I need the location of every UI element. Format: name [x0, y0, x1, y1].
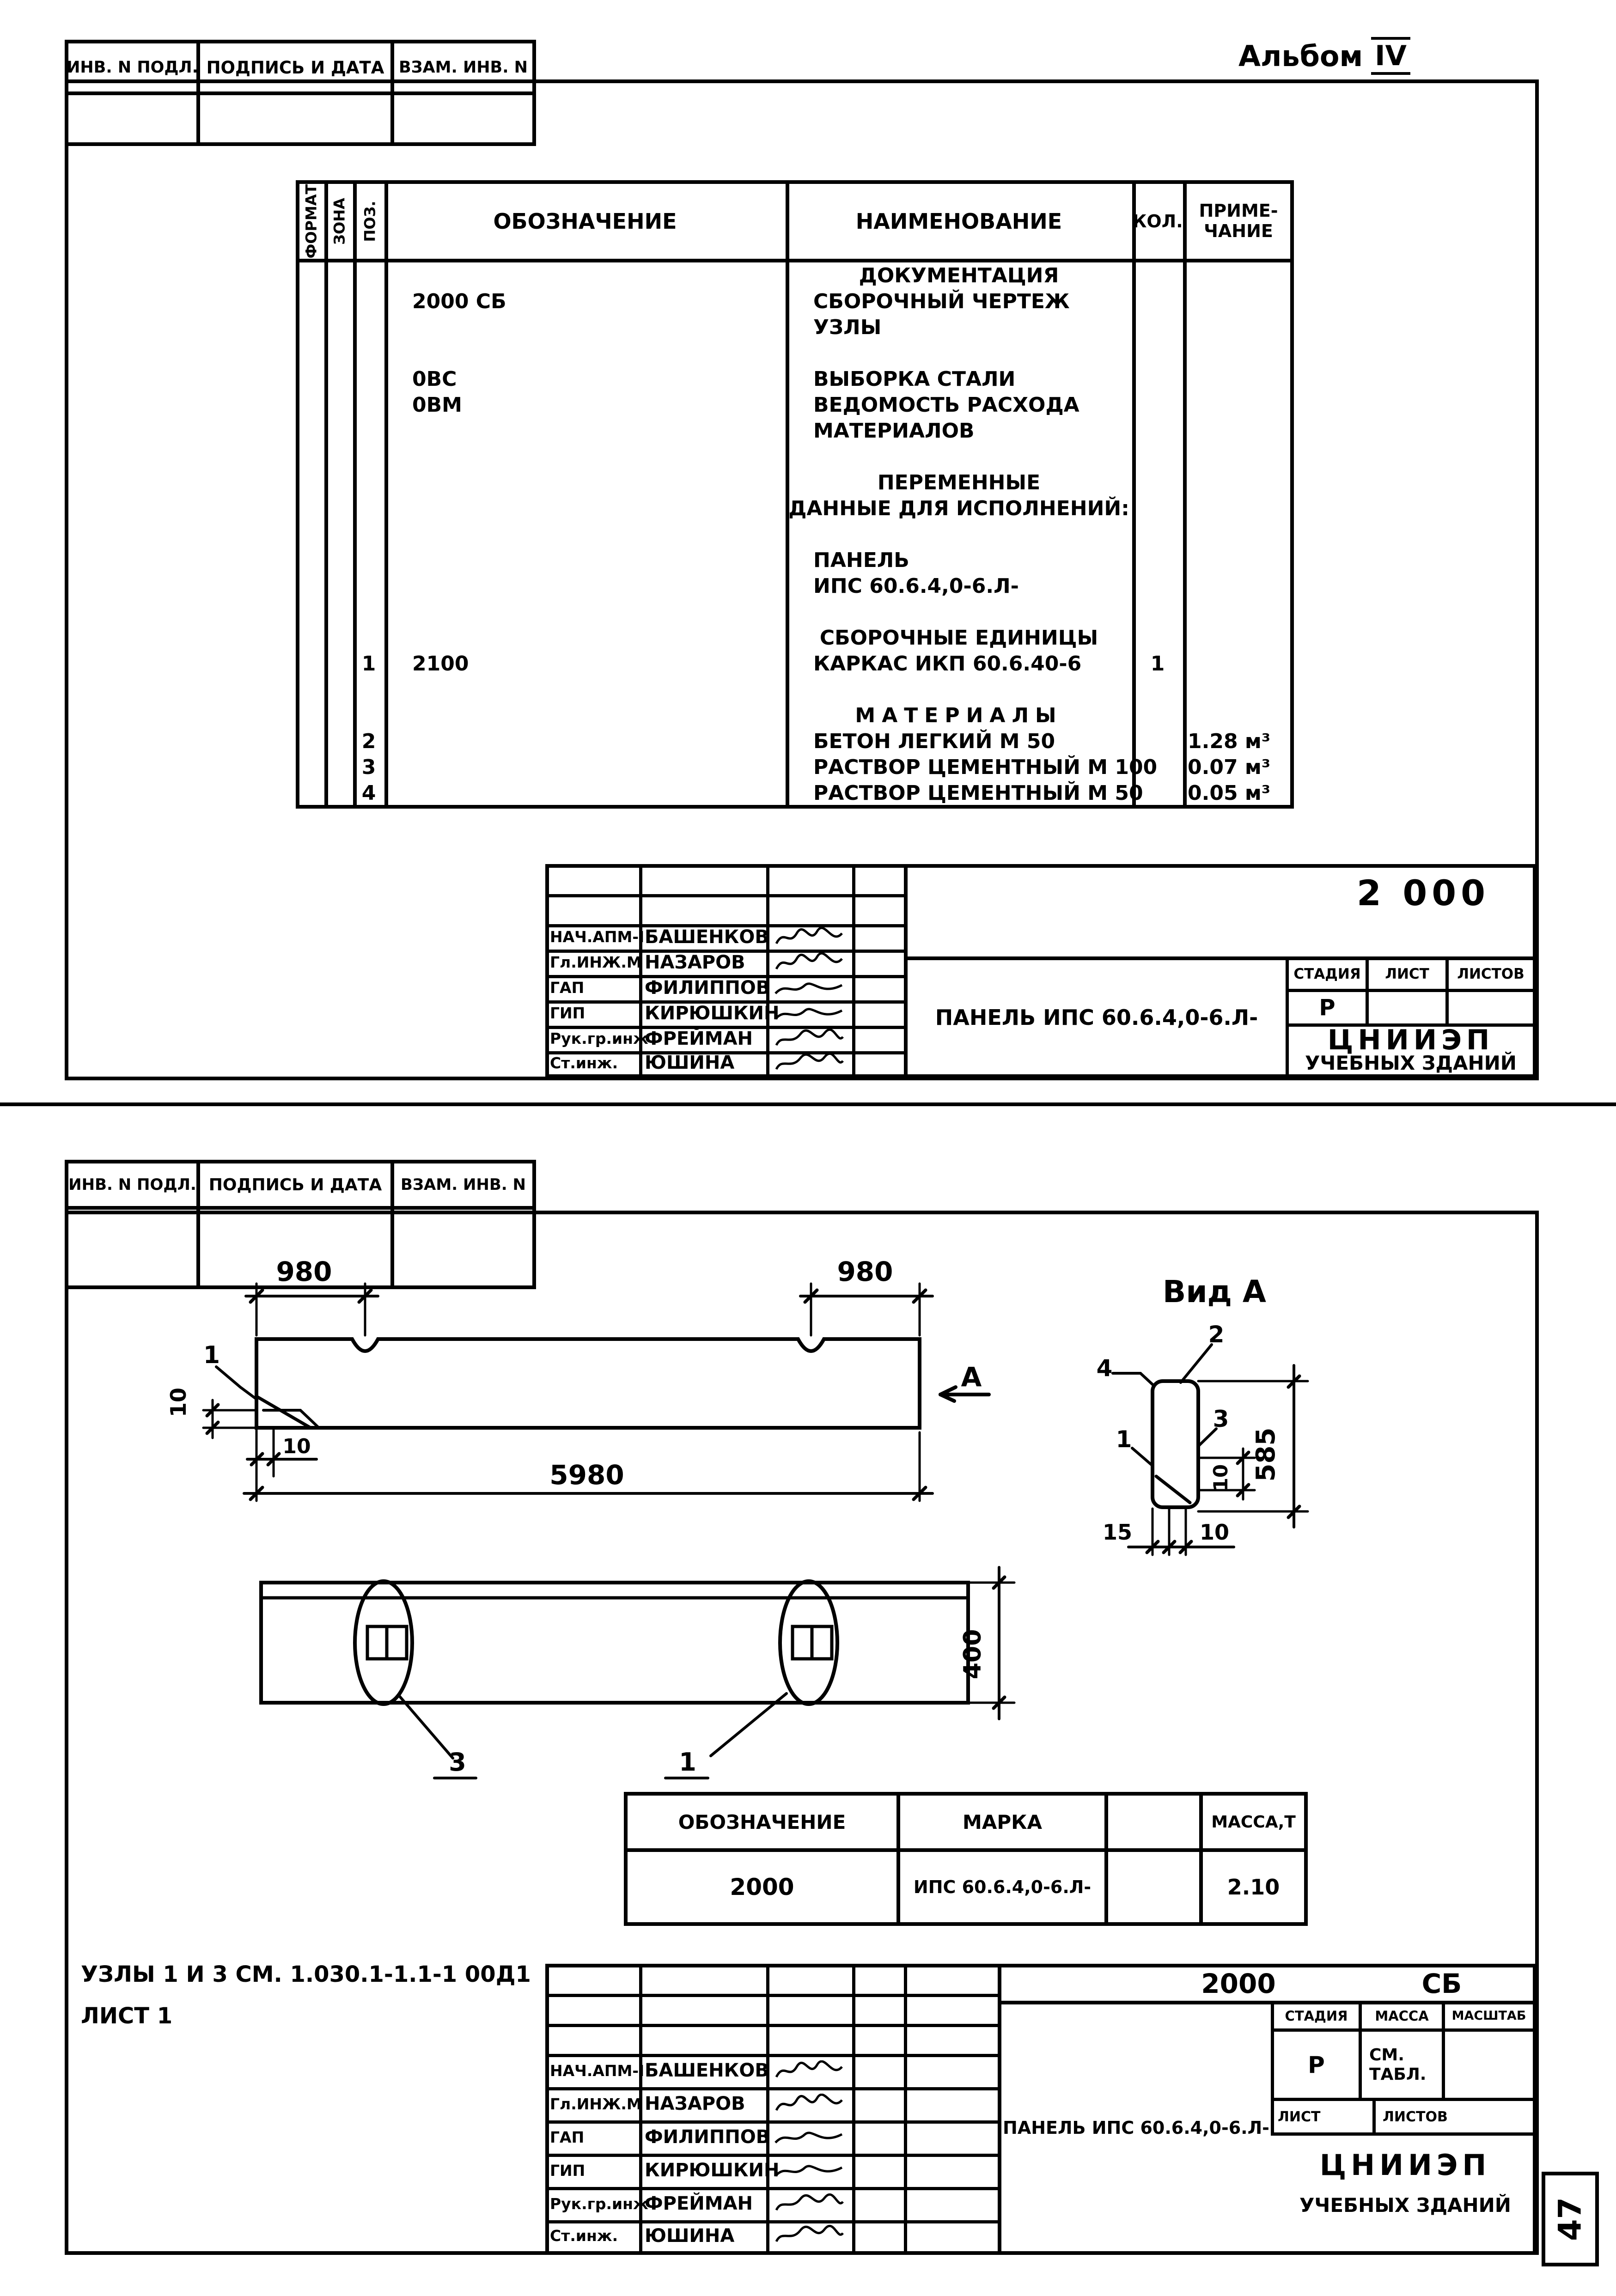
callout-view-1: 1 — [1116, 1426, 1132, 1453]
sig-name: БАШЕНКОВ — [645, 924, 765, 950]
dim-980-left: 980 — [276, 1256, 332, 1287]
drawing-note: УЗЛЫ 1 И 3 СМ. 1.030.1-1.1-1 00Д1 ЛИСТ 1 — [81, 1961, 531, 2029]
sig-role: Гл.ИНЖ.М — [550, 2087, 638, 2120]
signature-squiggle — [773, 2094, 847, 2114]
dim-10-view-bottom: 10 — [1200, 1520, 1229, 1545]
signature-squiggle — [773, 2193, 847, 2214]
stamp-cell-podpis-data: ПОДПИСЬ И ДАТА — [200, 1163, 390, 1206]
sig-role: ГАП — [550, 2120, 638, 2154]
sig-name: ФРЕЙМАН — [645, 2187, 765, 2220]
spec-row: ПАНЕЛЬ — [296, 547, 1294, 573]
org-name-line1: ЦНИИЭП — [1289, 1027, 1533, 1054]
spec-header-note: ПРИМЕ-ЧАНИЕ — [1183, 184, 1294, 259]
spec-row: ДАННЫЕ ДЛЯ ИСПОЛНЕНИЙ: — [296, 495, 1294, 521]
spec-header-qty: КОЛ. — [1132, 184, 1183, 259]
scale-label: МАСШТАБ — [1445, 2003, 1533, 2028]
signature-squiggle — [773, 2127, 847, 2147]
mark-table-header-mass: МАССА,Т — [1203, 1796, 1304, 1848]
spec-row — [296, 340, 1294, 366]
title-block-2: 2000 СБ ПАНЕЛЬ ИПС 60.6.4,0-6.Л- СТАДИЯ … — [545, 1964, 1537, 2255]
sig-name: БАШЕНКОВ — [645, 2054, 765, 2087]
signature-squiggle — [773, 927, 847, 947]
sig-name: ЮШИНА — [645, 2220, 765, 2251]
spec-header-name: НАИМЕНОВАНИЕ — [786, 184, 1132, 259]
section-label: А — [961, 1361, 982, 1393]
sig-role: НАЧ.АПМ-I — [550, 924, 638, 950]
album-label: Альбом IV — [1238, 37, 1410, 75]
spec-row: 2000 СБСБОРОЧНЫЙ ЧЕРТЕЖ — [296, 288, 1294, 314]
mark-table-mass: 2.10 — [1203, 1852, 1304, 1922]
note-line-2: ЛИСТ 1 — [81, 2003, 531, 2029]
org-name-line2: УЧЕБНЫХ ЗДАНИЙ — [1274, 2189, 1537, 2221]
dim-980-right: 980 — [837, 1256, 893, 1287]
spec-row: 2БЕТОН ЛЕГКИЙ М 501.28 м³ — [296, 728, 1294, 754]
sig-role: ГАП — [550, 975, 638, 1000]
spec-row: 3РАСТВОР ЦЕМЕНТНЫЙ М 1000.07 м³ — [296, 754, 1294, 780]
mass-label: МАССА — [1362, 2003, 1442, 2028]
sig-name: КИРЮШКИН — [645, 1000, 765, 1026]
stamp-cell-vzam-inv: ВЗАМ. ИНВ. N — [394, 1163, 532, 1206]
spec-header-format: ФОРМАТ — [296, 184, 326, 259]
mark-table-header-designation: ОБОЗНАЧЕНИЕ — [628, 1796, 896, 1848]
stage-value: Р — [1289, 992, 1366, 1023]
dim-10-left: 10 — [166, 1388, 191, 1417]
album-number: IV — [1371, 37, 1410, 75]
signature-squiggle — [773, 978, 847, 998]
spec-row: МАТЕРИАЛЫ — [296, 702, 1294, 728]
spec-table-body: ДОКУМЕНТАЦИЯ 2000 СБСБОРОЧНЫЙ ЧЕРТЕЖ УЗЛ… — [296, 262, 1294, 806]
page-number-tab: 47 — [1542, 2172, 1599, 2266]
doc-number: 2 000 — [1322, 871, 1525, 915]
spec-row: ДОКУМЕНТАЦИЯ — [296, 262, 1294, 288]
mass-value: СМ.ТАБЛ. — [1362, 2032, 1449, 2098]
signature-squiggle — [773, 2225, 847, 2245]
spec-row: 0ВМВЕДОМОСТЬ РАСХОДА — [296, 392, 1294, 418]
spec-row — [296, 521, 1294, 547]
sig-name: КИРЮШКИН — [645, 2154, 765, 2187]
page-number: 47 — [1523, 2191, 1616, 2248]
signature-squiggle — [773, 1053, 847, 1073]
spec-header-designation: ОБОЗНАЧЕНИЕ — [384, 184, 786, 259]
spec-row: ИПС 60.6.4,0-6.Л- — [296, 573, 1294, 599]
plan-callout-1: 1 — [679, 1748, 696, 1777]
sig-name: ФРЕЙМАН — [645, 1026, 765, 1051]
drawing-title: ПАНЕЛЬ ИПС 60.6.4,0-6.Л- — [1001, 2004, 1271, 2251]
drawing-title: ПАНЕЛЬ ИПС 60.6.4,0-6.Л- — [908, 960, 1286, 1074]
sig-role: Рук.гр.инж — [550, 2187, 638, 2220]
spec-row — [296, 444, 1294, 469]
title-block-1: 2 000 ПАНЕЛЬ ИПС 60.6.4,0-6.Л- СТАДИЯ ЛИ… — [545, 864, 1537, 1078]
doc-type: СБ — [1391, 1967, 1493, 2000]
stage-value: Р — [1274, 2032, 1359, 2098]
plan-callout-3: 3 — [449, 1748, 466, 1777]
sheet-label: ЛИСТ — [1278, 2101, 1370, 2132]
spec-row: 4РАСТВОР ЦЕМЕНТНЫЙ М 500.05 м³ — [296, 780, 1294, 806]
spec-row: 0ВСВЫБОРКА СТАЛИ — [296, 366, 1294, 392]
dim-10-view: 10 — [1209, 1464, 1232, 1491]
stage-label: СТАДИЯ — [1289, 959, 1366, 989]
dim-10-bottom: 10 — [282, 1435, 311, 1458]
spec-row: УЗЛЫ — [296, 314, 1294, 340]
mark-table-designation: 2000 — [628, 1852, 896, 1922]
sig-role: ГИП — [550, 2154, 638, 2187]
spec-header-zone: ЗОНА — [324, 184, 355, 259]
org-name-line1: ЦНИИЭП — [1274, 2142, 1537, 2188]
stamp-cell-inv-podl: ИНВ. N ПОДЛ. — [68, 1163, 196, 1206]
panel-drawing: 980 980 5980 1 10 10 А Вид А 4 2 3 1 585… — [69, 1248, 1539, 1797]
sig-name: ЮШИНА — [645, 1051, 765, 1074]
sheets-label: ЛИСТОВ — [1383, 2101, 1531, 2132]
signature-squiggle — [773, 2060, 847, 2081]
dim-585: 585 — [1251, 1428, 1281, 1482]
signature-squiggle — [773, 952, 847, 973]
note-line-1: УЗЛЫ 1 И 3 СМ. 1.030.1-1.1-1 00Д1 — [81, 1961, 531, 1987]
spec-table: ФОРМАТ ЗОНА ПОЗ. ОБОЗНАЧЕНИЕ НАИМЕНОВАНИ… — [296, 180, 1294, 809]
sig-name: НАЗАРОВ — [645, 950, 765, 975]
sig-name: ФИЛИППОВ — [645, 975, 765, 1000]
dim-400: 400 — [959, 1629, 987, 1680]
spec-row: СБОРОЧНЫЕ ЕДИНИЦЫ — [296, 625, 1294, 651]
mark-table: ОБОЗНАЧЕНИЕ МАРКА МАССА,Т 2000 ИПС 60.6.… — [624, 1792, 1308, 1926]
sig-name: НАЗАРОВ — [645, 2087, 765, 2120]
sig-role: ГИП — [550, 1000, 638, 1026]
signature-squiggle — [773, 1029, 847, 1049]
sig-role: Ст.инж. — [550, 2220, 638, 2251]
sig-role: Рук.гр.инж — [550, 1026, 638, 1051]
sig-name: ФИЛИППОВ — [645, 2120, 765, 2154]
spec-row: МАТЕРИАЛОВ — [296, 418, 1294, 444]
signature-squiggle — [773, 2160, 847, 2180]
dim-5980: 5980 — [549, 1459, 624, 1491]
callout-view-4: 4 — [1097, 1355, 1113, 1382]
sig-role: Ст.инж. — [550, 1051, 638, 1074]
stage-label: СТАДИЯ — [1274, 2003, 1359, 2028]
sheet-label: ЛИСТ — [1369, 959, 1445, 989]
scanned-drawing-page: ИНВ. N ПОДЛ. ПОДПИСЬ И ДАТА ВЗАМ. ИНВ. N… — [0, 0, 1616, 2296]
spec-header-pos: ПОЗ. — [353, 184, 386, 259]
spec-row — [296, 599, 1294, 625]
spec-row: 12100КАРКАС ИКП 60.6.40-61 — [296, 651, 1294, 676]
sig-role: Гл.ИНЖ.М — [550, 950, 638, 975]
doc-number: 2000 — [1169, 1967, 1308, 2000]
org-name-line2: УЧЕБНЫХ ЗДАНИЙ — [1289, 1051, 1533, 1074]
spec-row: ПЕРЕМЕННЫЕ — [296, 469, 1294, 495]
signature-squiggle — [773, 1003, 847, 1023]
spec-row — [296, 676, 1294, 702]
sheet-separator — [0, 1102, 1616, 1106]
view-a-label: Вид А — [1163, 1274, 1266, 1309]
sig-role: НАЧ.АПМ-I — [550, 2054, 638, 2087]
dim-15-view: 15 — [1103, 1520, 1132, 1545]
mark-table-mark: ИПС 60.6.4,0-6.Л- — [900, 1852, 1104, 1922]
album-word: Альбом — [1238, 39, 1363, 73]
callout-view-2: 2 — [1208, 1321, 1225, 1348]
mark-table-header-mark: МАРКА — [900, 1796, 1104, 1848]
callout-view-3: 3 — [1213, 1406, 1229, 1432]
callout-elevation-1: 1 — [203, 1341, 220, 1369]
sheets-label: ЛИСТОВ — [1449, 959, 1533, 989]
